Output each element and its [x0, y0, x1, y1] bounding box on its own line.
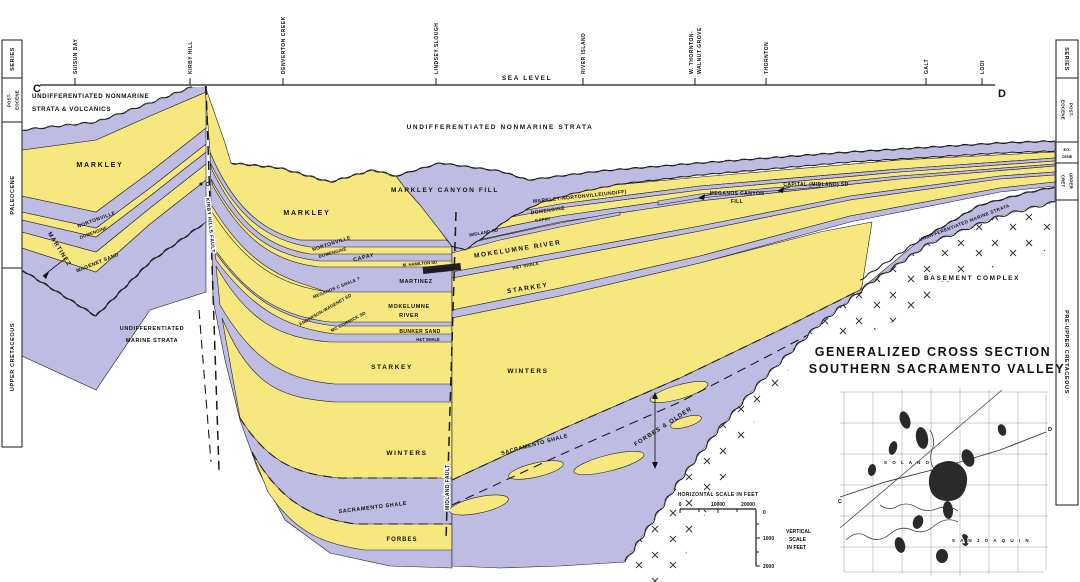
- paleocene-left: PALEOCENE: [10, 175, 16, 214]
- vertical-scale-label: VERTICAL: [786, 529, 811, 535]
- label-basement-complex: BASEMENT COMPLEX: [924, 275, 1020, 282]
- label-winters-center: WINTERS: [386, 450, 427, 457]
- label-mokelumne-river-center: MOKELUMNE: [388, 304, 429, 310]
- horizontal-scale-10000: 10000: [711, 502, 725, 508]
- post-eocene-right: POST-: [1069, 103, 1074, 118]
- cross-section-figure: C D SEA LEVEL SUISUN BAY KIRBY HILL DENV…: [0, 0, 1080, 582]
- section-end-label: D: [998, 88, 1006, 100]
- right-series-column: SERIES POST- EOCENE EO- CENE UPPER CRET …: [1056, 40, 1078, 505]
- map-section-end: D: [1048, 427, 1052, 433]
- upper-cret-right: UPPER: [1069, 173, 1074, 190]
- kirby-hills-fault-splay: [199, 310, 211, 462]
- title-line-2: SOUTHERN SACRAMENTO VALLEY: [809, 362, 1065, 376]
- label-undiff-nonmarine-volcanics: STRATA & VOLCANICS: [32, 106, 111, 113]
- label-undiff-nonmarine-center: UNDIFFERENTIATED NONMARINE STRATA: [407, 124, 594, 131]
- center-block: [205, 86, 452, 568]
- map-county-san-joaquin: S A N J O A Q U I N: [952, 538, 1031, 543]
- series-header-right: SERIES: [1063, 47, 1069, 71]
- post-eocene-left: EOCENE: [15, 90, 20, 110]
- location-label: THORNTON: [764, 42, 770, 74]
- right-column-box: [1056, 40, 1078, 505]
- vertical-scale-0: 0: [763, 510, 766, 516]
- location-label: DENVERTON CREEK: [281, 16, 287, 74]
- label-meganos-canyon-fill: MEGANOS CANYON: [710, 191, 765, 197]
- eocene-right: CENE: [1062, 154, 1073, 159]
- label-bunker-sand: BUNKER SAND: [399, 329, 440, 335]
- label-starkey-center: STARKEY: [371, 364, 413, 371]
- series-header-left: SERIES: [10, 47, 16, 71]
- location-label: LODI: [980, 60, 986, 74]
- label-midland-fault: MIDLAND FAULT: [445, 465, 451, 510]
- map-county-solano: S O L A N O: [884, 460, 931, 465]
- post-eocene-right: EOCENE: [1061, 100, 1066, 120]
- cross-section-canvas: C D SEA LEVEL SUISUN BAY KIRBY HILL DENV…: [0, 0, 1080, 582]
- horizontal-scale-label: HORIZONTAL SCALE IN FEET: [678, 492, 759, 498]
- upper-cret-right: CRET: [1061, 175, 1066, 188]
- label-undiff-nonmarine-volcanics: UNDIFFERENTIATED NONMARINE: [32, 93, 149, 100]
- label-markley-canyon-fill: MARKLEY CANYON FILL: [391, 187, 499, 194]
- label-ht-shale-center: H&T SHALE: [416, 337, 440, 342]
- location-label: RIVER ISLAND: [581, 33, 587, 74]
- upper-cretaceous-left: UPPER CRETACEOUS: [10, 323, 16, 391]
- vertical-scale-label: IN FEET: [787, 545, 806, 551]
- post-eocene-left: POST-: [7, 93, 12, 108]
- location-label: W. THORNTON-: [689, 31, 695, 74]
- vertical-scale-1000: 1000: [763, 536, 774, 542]
- fault-marker-dot: [200, 183, 203, 186]
- location-label: LINDSEY SLOUGH: [434, 23, 440, 74]
- location-label: SUISUN BAY: [73, 38, 79, 74]
- label-markley-center: MARKLEY: [283, 210, 330, 217]
- label-forbes: FORBES: [386, 537, 417, 543]
- vertical-scale-label: SCALE: [789, 537, 807, 543]
- label-mokelumne-river-center: RIVER: [399, 313, 419, 319]
- sea-level-label: SEA LEVEL: [502, 75, 552, 82]
- location-label: GALT: [924, 59, 930, 74]
- location-label: KIRBY HILL: [188, 41, 194, 74]
- label-capital-midland-sd: CAPITAL (MIDLAND) SD: [783, 182, 848, 188]
- map-section-start: C: [838, 499, 842, 505]
- pre-upper-cretaceous-right: PRE-UPPER CRETACEOUS: [1063, 310, 1069, 394]
- horizontal-scale-0: 0: [679, 502, 682, 508]
- horizontal-scale-20000: 20000: [741, 502, 755, 508]
- title-line-1: GENERALIZED CROSS SECTION: [815, 345, 1052, 359]
- eocene-right: EO-: [1064, 147, 1072, 152]
- label-undiff-marine-west: UNDIFFERENTIATED: [120, 326, 185, 332]
- label-markley-west: MARKLEY: [76, 162, 123, 169]
- label-martinez-center: MARTINEZ: [399, 279, 432, 285]
- label-meganos-canyon-fill: FILL: [731, 199, 743, 205]
- label-winters-east: WINTERS: [507, 368, 548, 375]
- location-label: WALNUT GROVE: [697, 27, 703, 74]
- label-undiff-marine-west: MARINE STRATA: [126, 338, 179, 344]
- left-series-column: SERIES POST- EOCENE PALEOCENE UPPER CRET…: [2, 40, 22, 447]
- vertical-scale-2000: 2000: [763, 564, 774, 570]
